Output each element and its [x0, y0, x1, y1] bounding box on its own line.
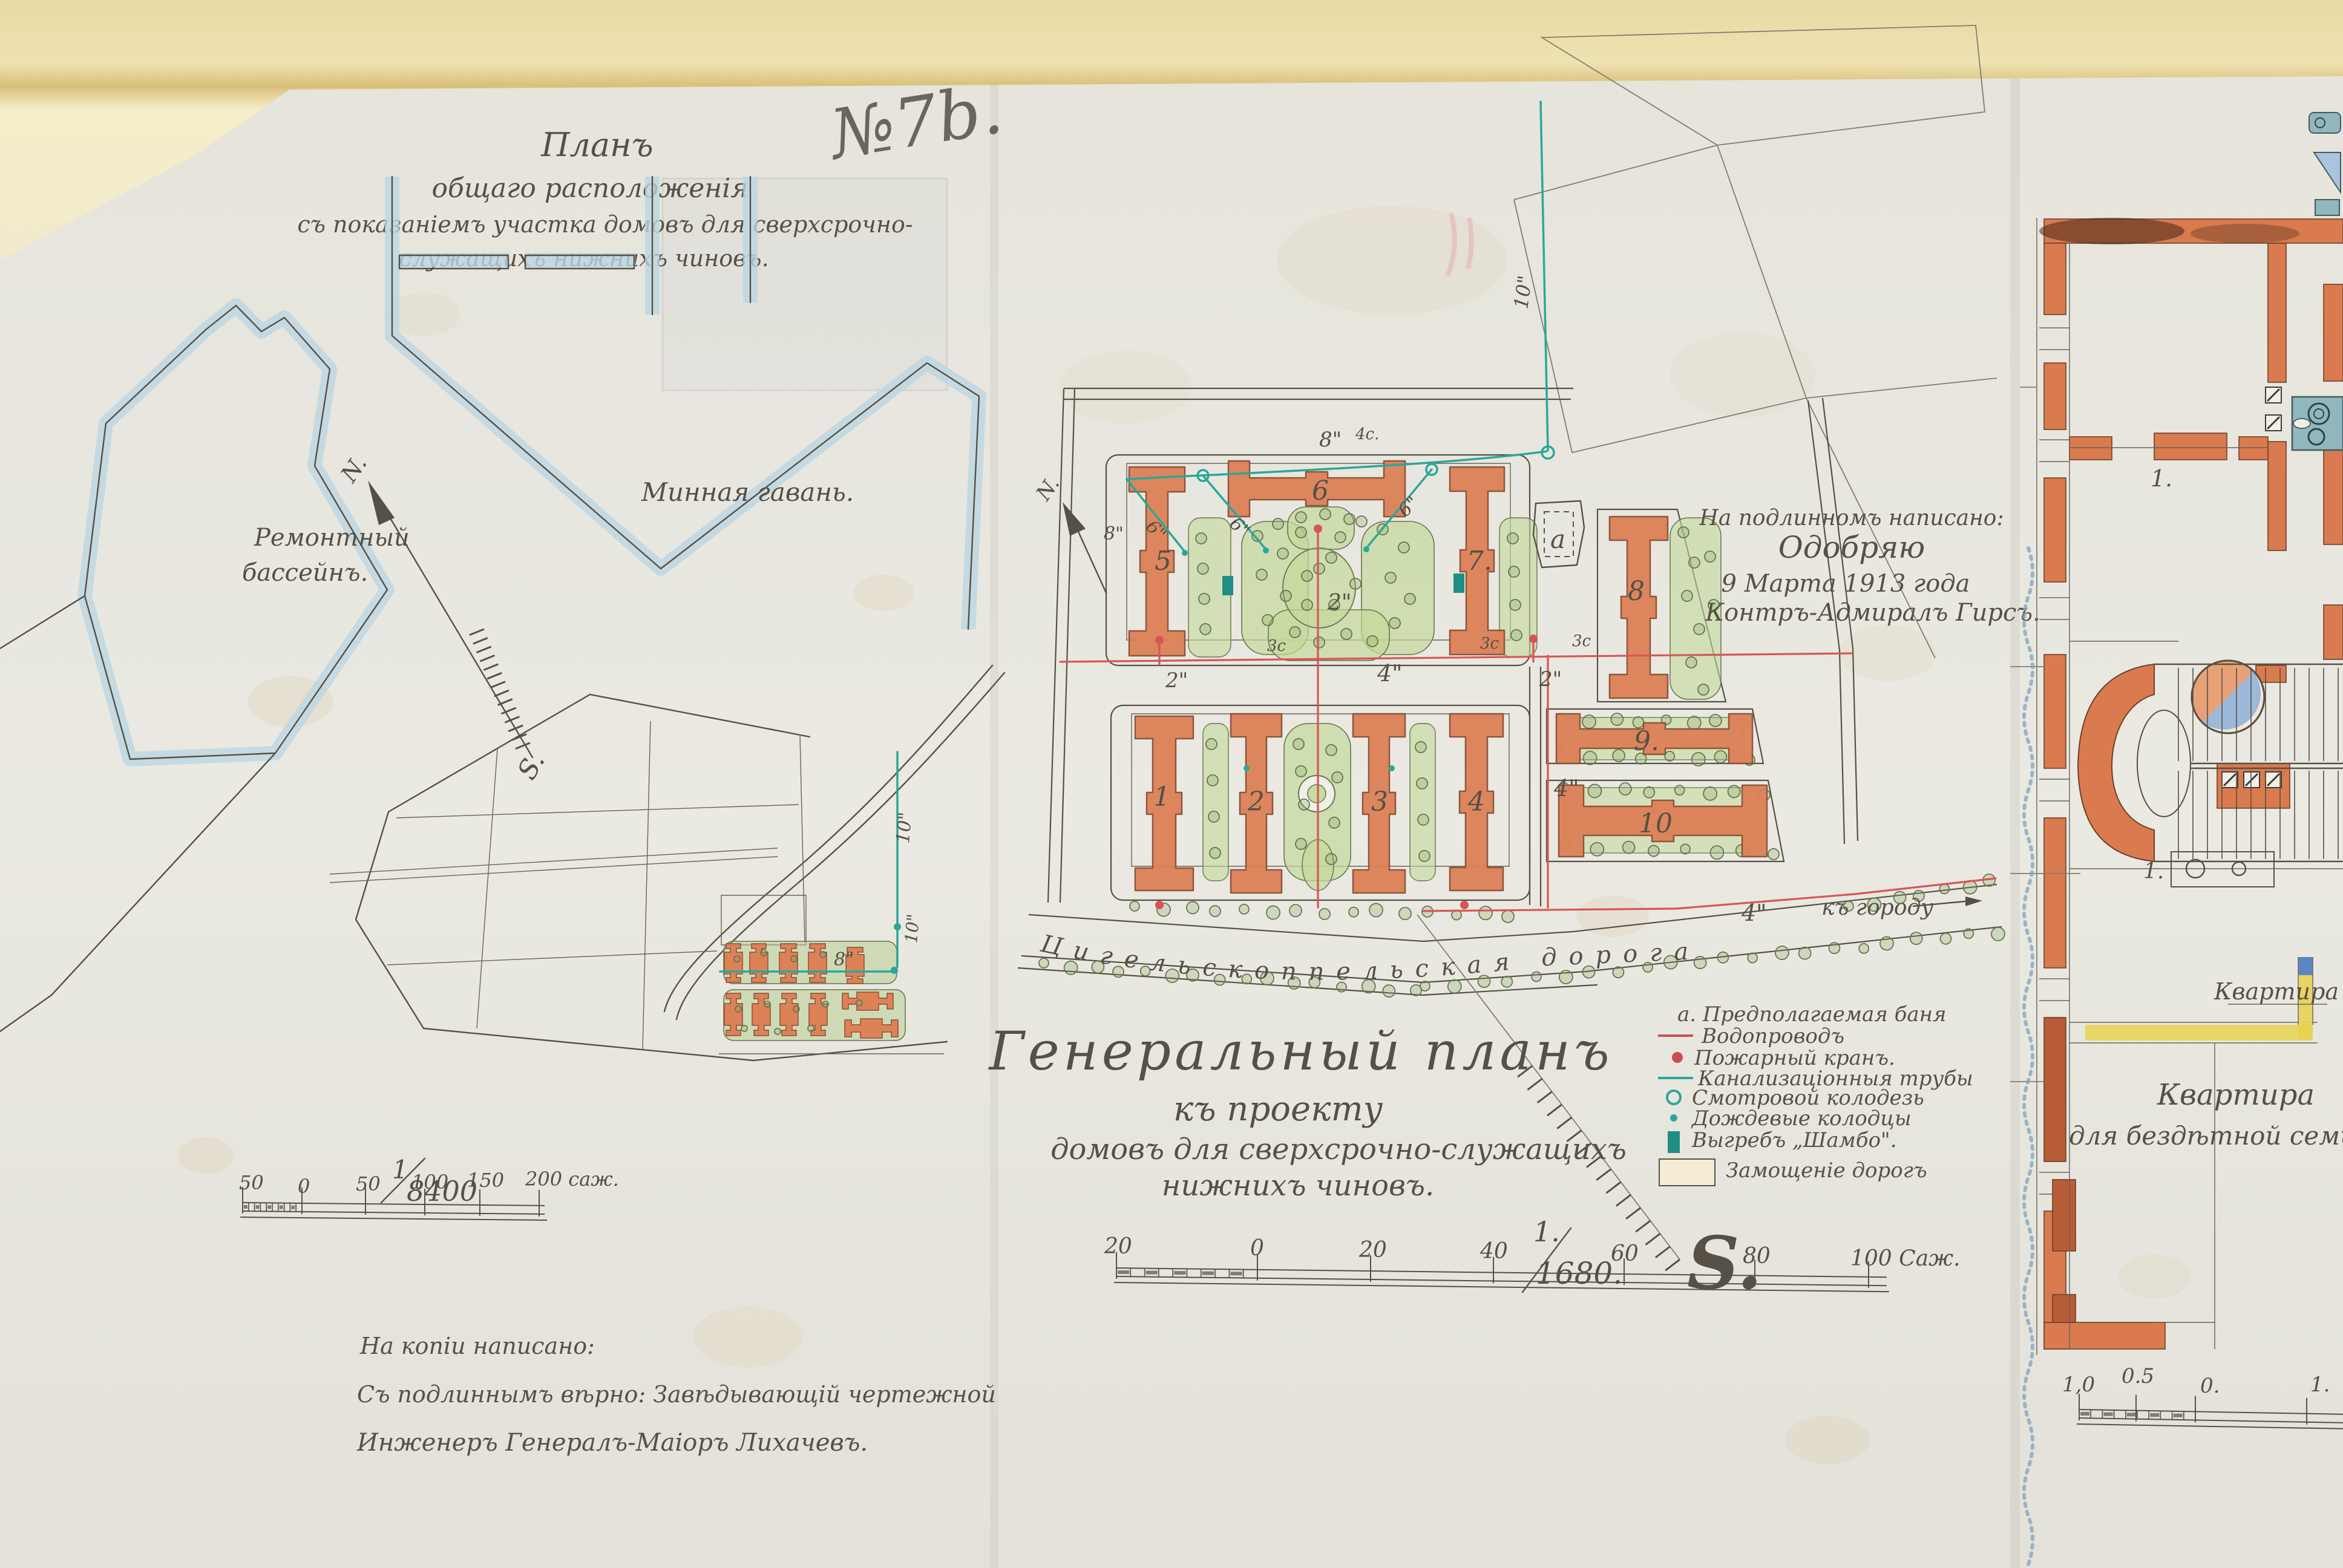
- scale-bar-dash: [256, 1205, 260, 1209]
- tree-icon: [1280, 590, 1291, 601]
- scanned-plan-sheet: Планъ общаго расположенія съ показаніемъ…: [0, 0, 2343, 1568]
- copy-note-line1: На копіи написано:: [359, 1333, 595, 1359]
- stain: [693, 1307, 802, 1367]
- tree-icon: [1326, 552, 1337, 563]
- tree-icon: [1680, 844, 1690, 854]
- tree-icon: [1314, 563, 1325, 574]
- tree-icon: [1613, 750, 1625, 762]
- stain: [853, 575, 914, 611]
- pipe-size-label: 4": [1741, 900, 1767, 926]
- tree-icon: [1210, 906, 1221, 916]
- wall-segment: [2268, 442, 2286, 550]
- scale-tick-label: 20: [1358, 1238, 1387, 1263]
- tree-icon: [1039, 958, 1049, 968]
- building-number: 2: [1247, 786, 1265, 817]
- tree-icon: [1320, 509, 1331, 520]
- pipe-size-label: 10": [1509, 274, 1536, 310]
- scale-tick-label: 80: [1743, 1244, 1771, 1269]
- bath-letter: а: [1550, 524, 1565, 554]
- wall-segment: [2154, 433, 2227, 460]
- tree-icon: [764, 1001, 770, 1007]
- pipe-size-label: 4": [1377, 660, 1403, 687]
- tree-icon: [1399, 907, 1411, 920]
- tree-icon: [1293, 739, 1304, 750]
- tree-icon: [775, 1028, 781, 1034]
- tree-icon: [1296, 766, 1306, 777]
- wall-segment: [2044, 478, 2066, 582]
- tree-icon: [820, 952, 826, 958]
- tree-icon: [1273, 518, 1283, 529]
- tree-icon: [1289, 904, 1302, 916]
- tree-icon: [1389, 618, 1400, 629]
- scale-tick-label: 60: [1611, 1241, 1639, 1266]
- scale-bar-dash: [291, 1206, 295, 1209]
- stain: [178, 1137, 234, 1174]
- pipe-size-label: 2": [1327, 590, 1351, 615]
- tree-icon: [1799, 947, 1811, 959]
- tree-icon: [1665, 751, 1674, 761]
- tree-icon: [1991, 927, 2005, 941]
- pipe-mark: 3c: [1480, 635, 1499, 653]
- scale-tick-label: 100: [411, 1171, 448, 1194]
- sheet-title-line1: Планъ: [540, 126, 653, 164]
- tree-icon: [1590, 843, 1604, 856]
- wall-segment: [2044, 1322, 2165, 1349]
- tree-icon: [1698, 684, 1709, 695]
- repair-basin-label2: бассейнъ.: [242, 559, 368, 587]
- wall-segment: [2268, 243, 2286, 382]
- tree-icon: [793, 1006, 799, 1012]
- scale-tick-label: 100 Саж.: [1850, 1246, 1961, 1271]
- tree-icon: [1256, 569, 1267, 580]
- plan-title-line3: домовъ для сверхсрочно-служащихъ: [1050, 1132, 1627, 1166]
- scale-tick-label: 200 саж.: [525, 1168, 619, 1191]
- building-number: 3: [1371, 786, 1388, 817]
- copy-note-line2: Съ подлиннымъ вѣрно: Завѣдывающій чертеж…: [357, 1381, 996, 1408]
- soot-stain: [2191, 224, 2299, 243]
- building-number: 7.: [1467, 546, 1492, 577]
- wall-segment: [2044, 655, 2066, 768]
- mine-harbor-label: Минная гавань.: [641, 477, 854, 507]
- teal-dot-icon: [1670, 1114, 1677, 1122]
- tree-icon: [1299, 799, 1309, 810]
- scale-bar-dash: [244, 1205, 247, 1209]
- tree-icon: [1367, 636, 1378, 647]
- tree-icon: [1419, 851, 1430, 861]
- approval-line3: 9 Марта 1913 года: [1721, 570, 1970, 598]
- building-number: 9.: [1634, 726, 1659, 757]
- repair-basin-label: Ремонтный: [254, 524, 410, 552]
- soot-stain: [2039, 218, 2184, 244]
- tree-icon: [1267, 906, 1280, 920]
- scale-tick-label: 0: [298, 1175, 310, 1198]
- scale-bar-dash: [2174, 1414, 2183, 1417]
- tree-icon: [1717, 952, 1728, 963]
- wall-segment: [2044, 1018, 2066, 1161]
- scale-bar-dash: [2103, 1413, 2112, 1416]
- building-number: 4: [1467, 786, 1485, 817]
- wall-segment: [2053, 1180, 2076, 1251]
- tree-icon: [1200, 624, 1211, 635]
- tree-icon: [1199, 593, 1210, 604]
- stain: [2118, 1255, 2191, 1298]
- tree-icon: [1623, 841, 1635, 854]
- tree-icon: [1686, 657, 1697, 668]
- tree-icon: [1332, 772, 1343, 783]
- tree-icon: [1326, 745, 1337, 756]
- scale-bar-dash: [1230, 1272, 1242, 1275]
- tree-icon: [1768, 849, 1779, 860]
- scale-tick-label: 50: [356, 1172, 381, 1195]
- scale-bar-dash: [1202, 1272, 1214, 1275]
- tree-icon: [741, 1025, 747, 1031]
- plan-title-line4: нижнихъ чиновъ.: [1162, 1169, 1434, 1203]
- fold-line: [990, 85, 998, 1568]
- pipe-size-label: 8": [834, 949, 854, 970]
- tree-icon: [1415, 742, 1426, 753]
- tree-icon: [1296, 527, 1306, 538]
- wall-segment: [2044, 818, 2066, 968]
- tree-icon: [856, 1000, 862, 1006]
- scale-bar-dash: [2080, 1412, 2089, 1416]
- tree-icon: [1207, 775, 1218, 786]
- tree-icon: [735, 1006, 741, 1012]
- blue-shaft: [2298, 957, 2313, 975]
- tree-icon: [1694, 624, 1705, 635]
- room-number: 1.: [2151, 465, 2172, 492]
- wall-segment: [2324, 284, 2343, 381]
- tree-icon: [1448, 980, 1461, 993]
- scale-bar-dash: [1174, 1271, 1185, 1275]
- pipe-size-label: 8": [1104, 523, 1124, 544]
- tree-icon: [1296, 838, 1306, 849]
- drawing-scan: Планъ общаго расположенія съ показаніемъ…: [0, 0, 2343, 1568]
- wall-segment: [2044, 363, 2066, 430]
- tree-icon: [1319, 909, 1330, 920]
- scale-tick-label: 40: [1480, 1239, 1508, 1264]
- tree-icon: [1404, 593, 1415, 604]
- tree-icon: [1682, 590, 1693, 601]
- wall-segment: [2239, 437, 2268, 460]
- legend-label: Дождевые колодцы: [1691, 1106, 1912, 1131]
- building-number: 5: [1155, 546, 1171, 577]
- stain: [1576, 896, 1649, 937]
- scale-tick-label: 1,0: [2062, 1373, 2095, 1397]
- tree-icon: [1678, 527, 1689, 538]
- tree-icon: [1398, 542, 1409, 553]
- pipe-size-label: 4": [1553, 775, 1579, 802]
- scale-tick-label: 50: [239, 1171, 264, 1194]
- scale-tick-label: 0.5: [2122, 1364, 2154, 1388]
- scale-numerator: 1.: [1533, 1215, 1560, 1248]
- tree-icon: [1728, 785, 1740, 797]
- tree-icon: [1289, 627, 1300, 638]
- tree-icon: [822, 1001, 828, 1007]
- paved-rect-icon: [1659, 1159, 1715, 1186]
- pipe-size-label: 10": [901, 913, 923, 944]
- tree-icon: [791, 956, 797, 962]
- tree-icon: [1619, 783, 1631, 795]
- tree-icon: [1940, 933, 1951, 944]
- scale-tick-label: 20: [1104, 1234, 1132, 1259]
- scale-tick-label: 1.: [2310, 1373, 2330, 1397]
- room-number: 1.: [2143, 859, 2164, 884]
- tree-icon: [1705, 551, 1715, 562]
- tree-icon: [1709, 714, 1722, 727]
- legend-label: Водопроводъ: [1701, 1024, 1844, 1048]
- plan-title-line2: къ проекту: [1173, 1089, 1383, 1129]
- tree-icon: [1356, 516, 1367, 527]
- scale-numerator: 1: [392, 1155, 408, 1184]
- scale-bar-dash: [1118, 1270, 1129, 1274]
- round-stove-icon: [2192, 661, 2264, 733]
- approval-line2: Одобряю: [1778, 530, 1925, 565]
- tree-icon: [1710, 846, 1723, 859]
- tree-icon: [1262, 615, 1273, 626]
- tree-icon: [1335, 532, 1346, 543]
- tree-icon: [1417, 778, 1427, 789]
- tree-icon: [1692, 753, 1705, 766]
- tree-icon: [1302, 570, 1312, 581]
- scale-bar-dash: [2127, 1413, 2136, 1416]
- tree-icon: [1210, 848, 1221, 858]
- tree-icon: [1507, 533, 1518, 544]
- tree-icon: [1502, 910, 1514, 923]
- pipe-mark: 3c: [1572, 632, 1591, 650]
- pipe-size-label: 2": [1539, 667, 1562, 691]
- tree-icon: [1341, 629, 1352, 639]
- pipe-mark: 4c.: [1355, 425, 1379, 443]
- scale-bar-dash: [1146, 1271, 1158, 1275]
- tree-icon: [1775, 946, 1789, 959]
- teal-rect-icon: [1668, 1131, 1680, 1153]
- apartment-label-line2: для бездѣтной семьи: [2069, 1121, 2343, 1151]
- corridor-label: Квартира: [2214, 978, 2339, 1005]
- tree-icon: [1344, 514, 1355, 524]
- tree-icon: [1196, 533, 1207, 544]
- tree-icon: [1510, 599, 1521, 610]
- tree-icon: [1418, 814, 1429, 825]
- approval-line4: Контръ-Адмиралъ Гирсъ.: [1705, 599, 2040, 627]
- stain: [1059, 351, 1192, 423]
- wall-segment: [2053, 1295, 2076, 1322]
- building-number: 1: [1153, 782, 1170, 812]
- red-dot-icon: [1672, 1052, 1683, 1063]
- scale-tick-label: 0.: [2200, 1374, 2220, 1398]
- tree-icon: [1385, 572, 1396, 583]
- tree-icon: [1675, 785, 1685, 795]
- legend-label: а. Предполагаемая баня: [1677, 1002, 1947, 1027]
- tree-icon: [1714, 751, 1726, 763]
- tree-icon: [761, 950, 767, 956]
- kitchen-range-icon: [2292, 397, 2343, 450]
- tree-icon: [1859, 944, 1869, 953]
- stain: [1785, 1416, 1870, 1464]
- tree-icon: [1369, 903, 1383, 916]
- scale-bar-dash: [2150, 1413, 2159, 1417]
- tree-icon: [1643, 787, 1654, 798]
- tree-icon: [1584, 751, 1597, 765]
- tree-icon: [1939, 884, 1949, 893]
- tree-icon: [1479, 906, 1492, 920]
- sheet-title-line2: общаго расположенія: [432, 173, 749, 204]
- tree-icon: [1688, 716, 1701, 730]
- scale-tick-label: 0: [1250, 1236, 1264, 1261]
- plan-title-line1: Генеральный планъ: [988, 1020, 1613, 1082]
- tree-icon: [1239, 904, 1249, 914]
- fold-line: [2010, 79, 2020, 1568]
- pipe-size-label: 10": [893, 811, 916, 844]
- pipe-mark: 3c: [1267, 637, 1286, 655]
- tree-icon: [1582, 715, 1596, 728]
- wall-segment: [2044, 243, 2066, 315]
- tree-icon: [1501, 976, 1512, 987]
- wall-segment: [2324, 605, 2343, 659]
- tree-icon: [1880, 937, 1893, 950]
- building-number: 8: [1628, 576, 1645, 607]
- pipe-size-label: 2": [1165, 668, 1188, 693]
- tree-icon: [1187, 901, 1199, 913]
- tree-icon: [734, 956, 740, 962]
- tree-icon: [1208, 811, 1219, 822]
- tree-icon: [1588, 785, 1601, 798]
- paved-corridor: [2085, 1025, 2313, 1040]
- approval-line1: На подлинномъ написано:: [1699, 506, 2004, 531]
- tree-icon: [1511, 630, 1522, 641]
- tree-icon: [1964, 929, 1973, 938]
- building-number: 6: [1312, 475, 1329, 506]
- tree-icon: [1130, 901, 1139, 911]
- tree-icon: [1703, 787, 1717, 800]
- scale-tick-label: 150: [467, 1169, 504, 1192]
- stain: [1670, 333, 1815, 417]
- tree-icon: [1350, 578, 1361, 589]
- building-number: 10: [1639, 808, 1673, 839]
- wall-segment: [2069, 437, 2112, 460]
- tree-icon: [1648, 846, 1659, 857]
- stamp-ghost: [663, 178, 947, 390]
- tree-icon: [1329, 817, 1340, 828]
- tree-icon: [1509, 566, 1519, 577]
- pipe-size-label: 8": [1319, 428, 1342, 452]
- tree-icon: [808, 1025, 814, 1031]
- tree-icon: [1748, 953, 1757, 962]
- tree-icon: [1296, 512, 1306, 523]
- to-city-label: къ городу: [1821, 895, 1933, 920]
- tree-icon: [1559, 970, 1573, 984]
- tree-icon: [1314, 637, 1325, 648]
- scale-bar-dash: [267, 1205, 271, 1209]
- copy-note-line3: Инженеръ Генералъ-Маіоръ Лихачевъ.: [356, 1429, 868, 1457]
- tree-icon: [1383, 985, 1395, 997]
- legend-label: Замощеніе дорогъ: [1726, 1158, 1927, 1183]
- tree-icon: [1302, 599, 1312, 610]
- tree-icon: [1277, 548, 1288, 559]
- tree-icon: [1689, 557, 1700, 568]
- legend-label: Выгребъ „Шамбо".: [1691, 1128, 1897, 1152]
- tree-icon: [1198, 563, 1208, 574]
- tree-icon: [1206, 739, 1217, 750]
- tree-icon: [1910, 932, 1922, 944]
- apartment-label-line1: Квартира: [2157, 1078, 2315, 1112]
- tree-icon: [1829, 942, 1840, 953]
- scale-bar-dash: [280, 1206, 283, 1209]
- tree-icon: [1349, 907, 1358, 917]
- tree-icon: [1326, 854, 1337, 864]
- tree-icon: [1611, 713, 1623, 725]
